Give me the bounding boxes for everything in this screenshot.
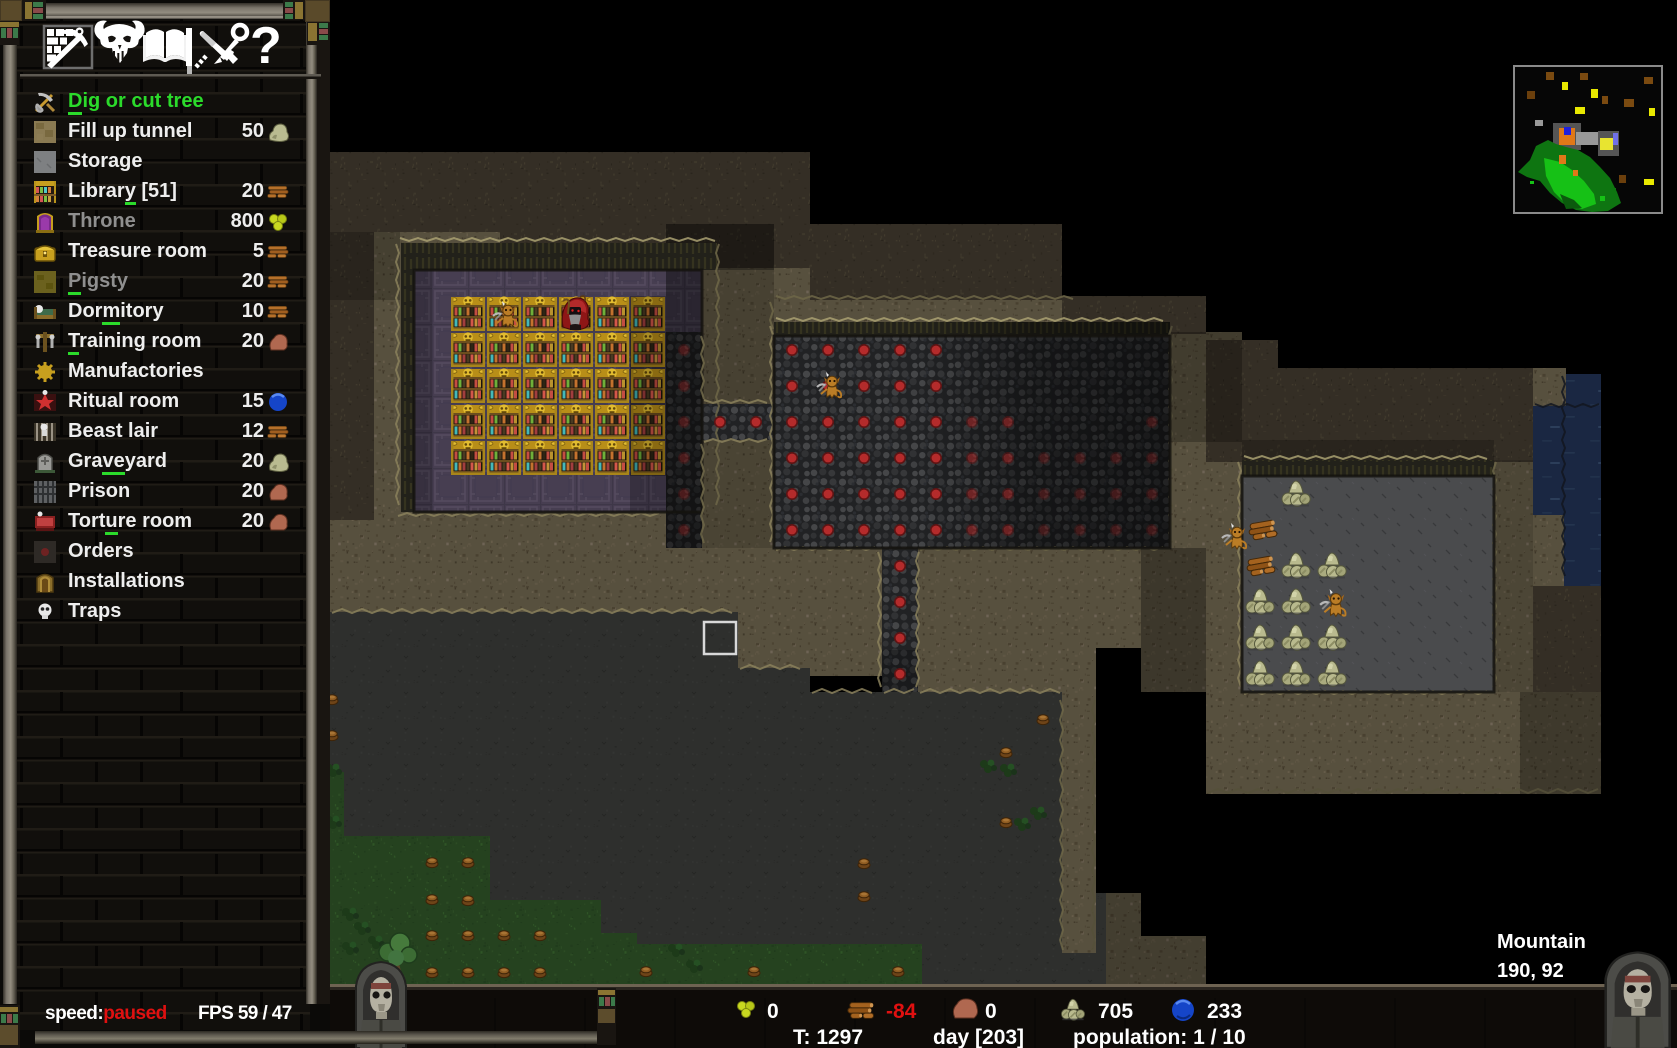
svg-text:Mountain: Mountain xyxy=(1497,931,1586,953)
svg-text:T: 1297: T: 1297 xyxy=(793,1026,863,1048)
svg-text:?: ? xyxy=(250,17,282,75)
svg-text:day [203]: day [203] xyxy=(933,1026,1024,1048)
svg-text:190, 92: 190, 92 xyxy=(1497,960,1564,982)
svg-text:0: 0 xyxy=(985,1000,997,1023)
svg-text:705: 705 xyxy=(1098,1000,1133,1023)
svg-text:population: 1 / 10: population: 1 / 10 xyxy=(1073,1026,1246,1048)
svg-text:233: 233 xyxy=(1207,1000,1242,1023)
svg-text:0: 0 xyxy=(767,1000,779,1023)
svg-text:-84: -84 xyxy=(886,1000,917,1023)
